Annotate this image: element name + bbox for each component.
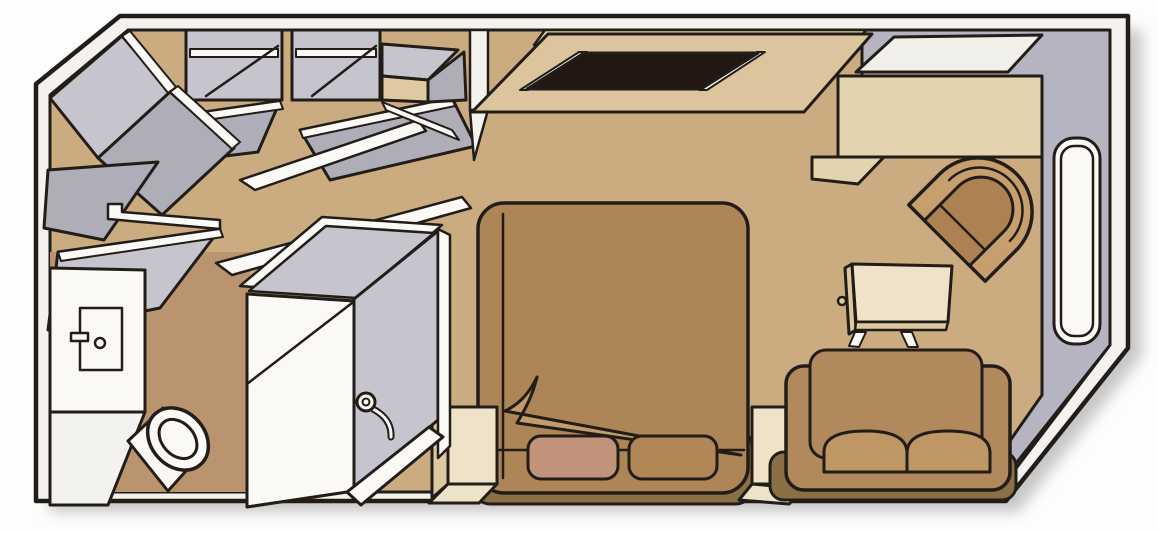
wardrobe-bay-2 [292, 30, 380, 100]
floor-plan-stage [0, 0, 1158, 533]
side-table-knob [838, 297, 846, 305]
desk-front [838, 76, 1042, 157]
shower-interior [247, 294, 354, 507]
side-table-top [852, 264, 952, 322]
sofa-seat-cushion-right [907, 431, 990, 472]
vanity-handle [71, 333, 88, 341]
nightstand-left [448, 407, 497, 484]
shower-head-center [363, 399, 370, 406]
plan-lines [36, 16, 1128, 507]
vanity-knob [95, 338, 105, 348]
floor-plan-illustration [0, 0, 1158, 533]
wardrobe-bay-1 [186, 30, 282, 100]
safe-cabinet-interior [382, 76, 428, 102]
sofa-seat-cushion-left [824, 431, 907, 472]
pillow-left [528, 436, 618, 479]
pillow-right [629, 436, 717, 479]
side-table-apron [855, 322, 948, 330]
shower-frame-strip [438, 229, 450, 458]
